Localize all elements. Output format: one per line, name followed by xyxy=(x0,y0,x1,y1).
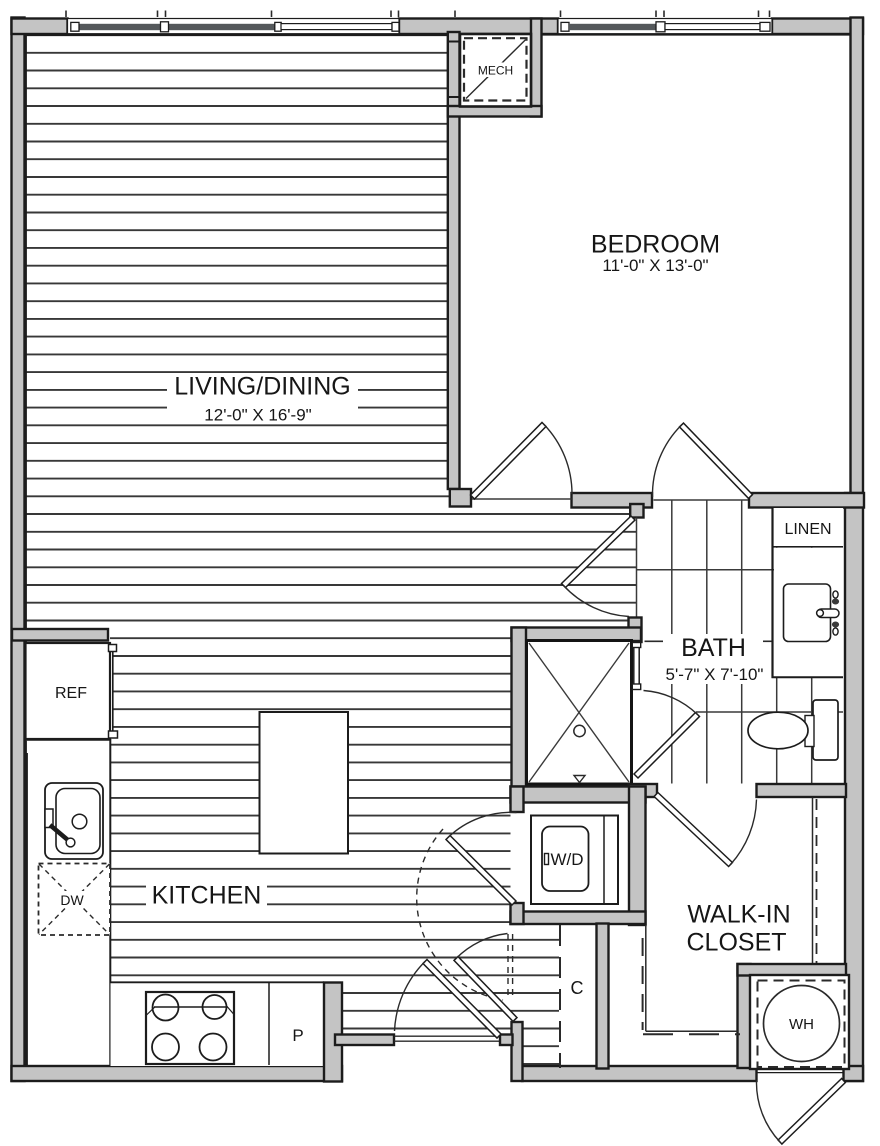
svg-text:C: C xyxy=(571,978,584,998)
svg-text:11'-0" X 13'-0": 11'-0" X 13'-0" xyxy=(602,256,708,275)
svg-text:P: P xyxy=(292,1026,303,1045)
svg-text:12'-0" X 16'-9": 12'-0" X 16'-9" xyxy=(204,406,311,425)
svg-text:BATH: BATH xyxy=(681,634,746,662)
svg-text:WALK-IN: WALK-IN xyxy=(687,901,790,929)
svg-text:REF: REF xyxy=(55,685,87,702)
svg-text:MECH: MECH xyxy=(478,64,513,78)
svg-text:WH: WH xyxy=(789,1016,814,1033)
svg-text:LINEN: LINEN xyxy=(784,521,831,538)
svg-text:BEDROOM: BEDROOM xyxy=(591,231,720,259)
svg-text:KITCHEN: KITCHEN xyxy=(152,882,262,910)
svg-text:DW: DW xyxy=(60,892,84,908)
svg-text:5'-7" X 7'-10": 5'-7" X 7'-10" xyxy=(666,665,764,684)
svg-text:LIVING/DINING: LIVING/DINING xyxy=(174,373,350,401)
svg-text:CLOSET: CLOSET xyxy=(686,929,786,957)
svg-text:W/D: W/D xyxy=(550,850,583,869)
